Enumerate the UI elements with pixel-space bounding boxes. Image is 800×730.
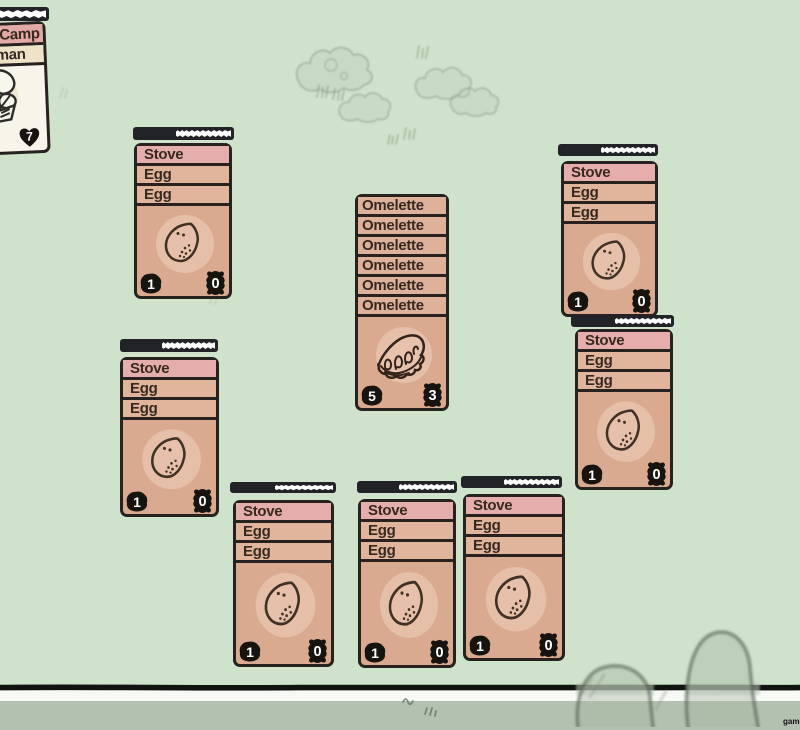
svg-text:0: 0 bbox=[637, 294, 645, 310]
svg-text:1: 1 bbox=[133, 494, 141, 510]
svg-text:7: 7 bbox=[26, 129, 34, 143]
svg-text:1: 1 bbox=[147, 276, 155, 292]
svg-text:0: 0 bbox=[435, 645, 443, 661]
svg-text:1: 1 bbox=[476, 638, 484, 654]
svg-text:0: 0 bbox=[198, 494, 206, 510]
svg-text:0: 0 bbox=[211, 276, 219, 292]
svg-text:3: 3 bbox=[428, 388, 436, 404]
svg-text:0: 0 bbox=[652, 467, 660, 483]
svg-text:0: 0 bbox=[544, 638, 552, 654]
svg-text:5: 5 bbox=[368, 388, 376, 404]
svg-text:1: 1 bbox=[574, 294, 582, 310]
svg-text:1: 1 bbox=[588, 467, 596, 483]
svg-text:1: 1 bbox=[371, 645, 379, 661]
svg-text:0: 0 bbox=[313, 644, 321, 660]
svg-text:1: 1 bbox=[246, 644, 254, 660]
